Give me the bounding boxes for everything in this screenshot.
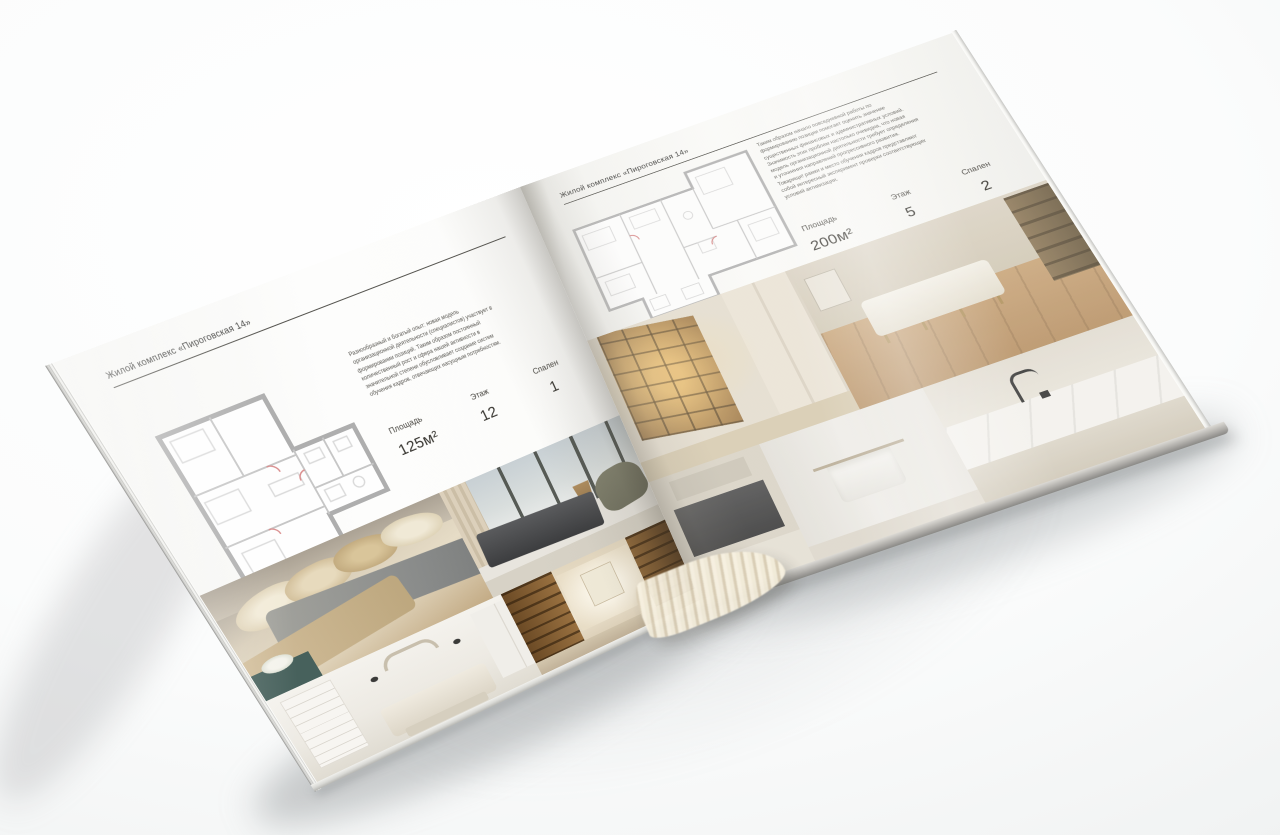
backdrop: Жилой комплекс «Пироговская 14» Разнообр… — [0, 0, 1280, 835]
